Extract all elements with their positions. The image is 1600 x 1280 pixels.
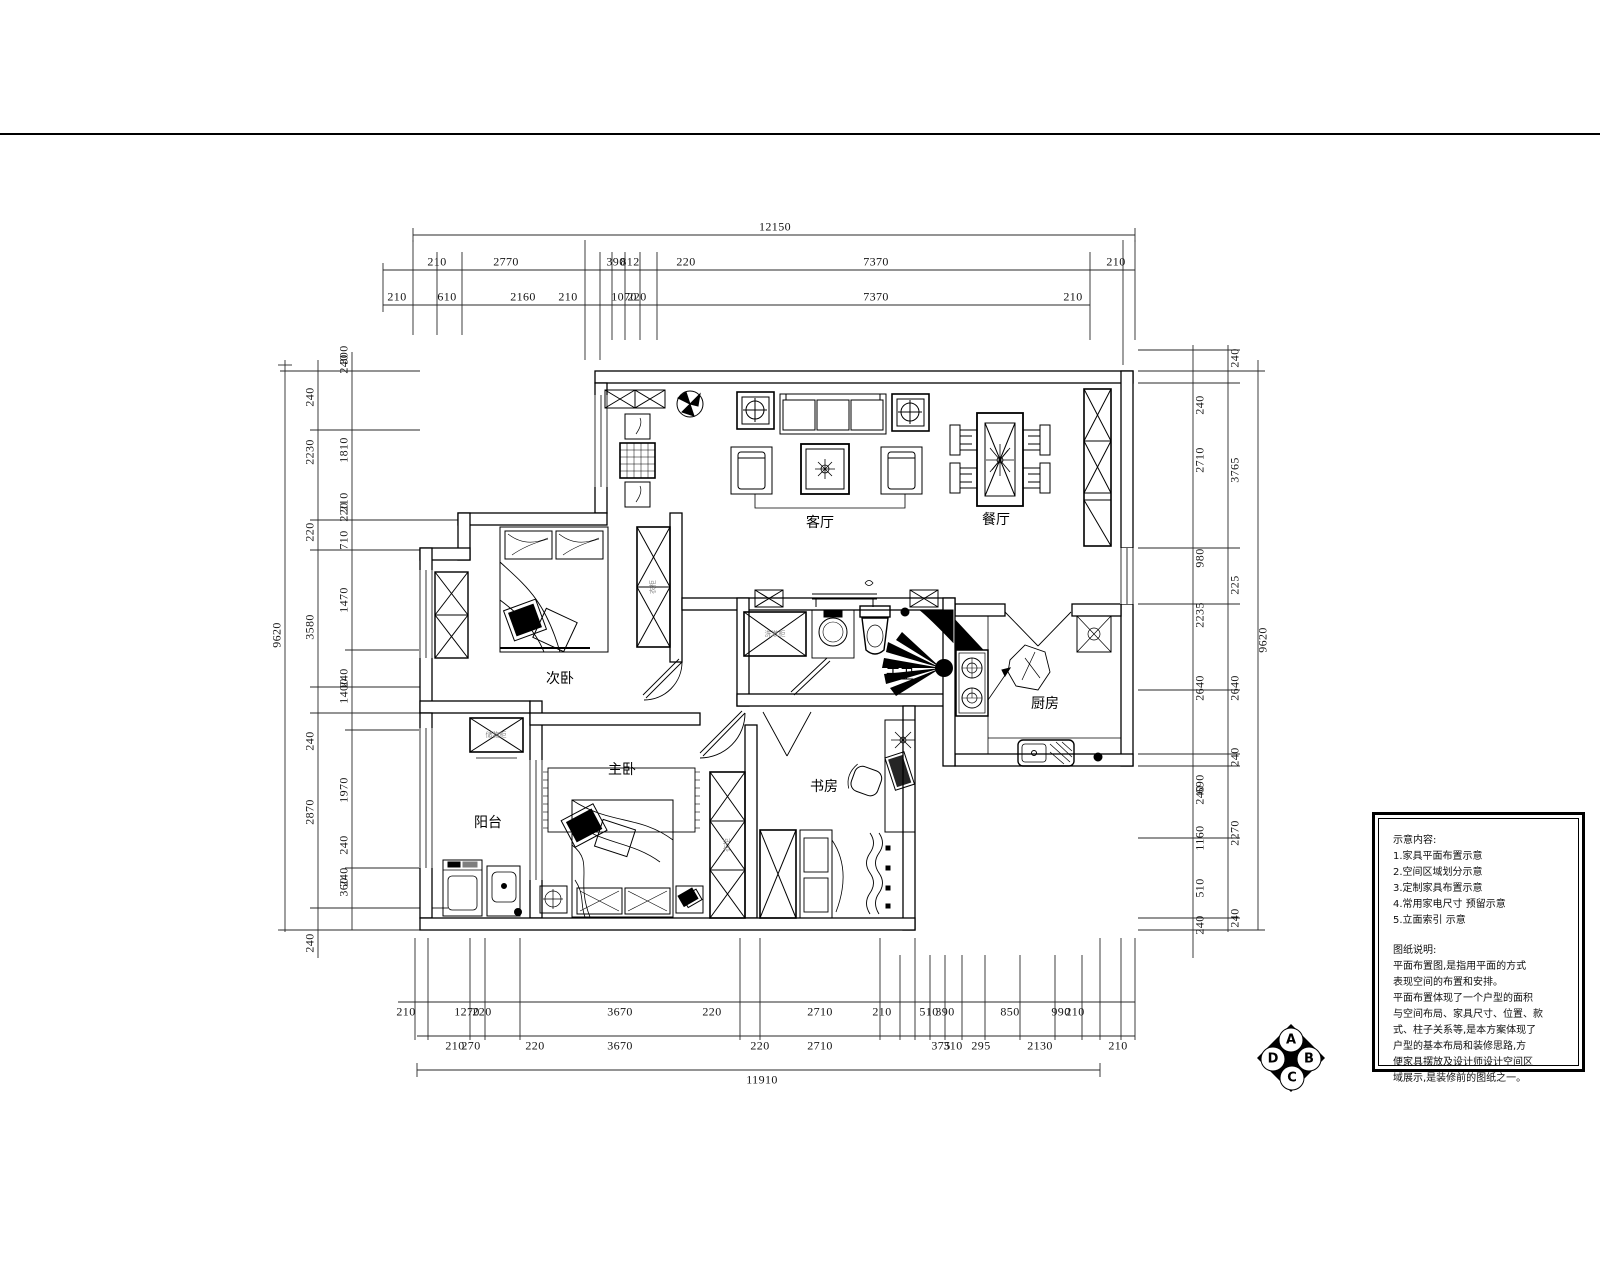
dim-label: 210: [558, 290, 577, 305]
room-label-bath: 干卫: [886, 664, 914, 684]
dim-label: 240: [1193, 785, 1208, 804]
dim-label: 210: [1108, 1039, 1127, 1054]
dim-label: 3670: [607, 1039, 633, 1054]
dim-label: 2770: [493, 255, 519, 270]
elevation-letter-b: B: [1304, 1052, 1314, 1067]
dim-label: 210: [387, 290, 406, 305]
dim-label: 1160: [1193, 825, 1208, 850]
kitchen-furniture: [955, 616, 1121, 766]
notes-item: 5.立面索引 示意: [1393, 913, 1568, 929]
dim-label: 980: [1193, 548, 1208, 567]
dim-label: 850: [1000, 1005, 1019, 1020]
dim-label: 2640: [1193, 675, 1208, 701]
dim-label: 220: [676, 255, 695, 270]
doors: [643, 612, 1071, 758]
dim-label: 210: [1063, 290, 1082, 305]
dim-label: 7370: [863, 255, 889, 270]
dim-label: 210: [427, 255, 446, 270]
notes-item: 3.定制家具布置示意: [1393, 881, 1568, 897]
dim-label: 270: [461, 1039, 480, 1054]
dim-label: 240: [303, 933, 318, 952]
dim-label: 610: [437, 290, 456, 305]
dim-label: 240: [1228, 348, 1243, 367]
dim-label: 1470: [337, 587, 352, 613]
room-label-bed2: 次卧: [546, 668, 574, 688]
dim-label: 390: [935, 1005, 954, 1020]
notes-line: 便家具摆放及设计师设计空间区: [1393, 1055, 1568, 1071]
dim-left-total: 9620: [270, 622, 285, 648]
notes-line: 平面布置图,是指用平面的方式: [1393, 959, 1568, 975]
dim-bottom-total: 11910: [746, 1073, 778, 1088]
notes-item: 2.空间区域划分示意: [1393, 865, 1568, 881]
dim-label: 1400: [337, 678, 352, 704]
furniture-label-vanity: 洗漱柜: [765, 629, 786, 639]
notes-line: 式、柱子关系等,是本方案体现了: [1393, 1023, 1568, 1039]
dim-label: 220: [303, 522, 318, 541]
dim-label: 220: [627, 290, 646, 305]
dim-label: 2270: [1228, 820, 1243, 846]
dim-label: 240: [1228, 908, 1243, 927]
furniture-label-wardrobe2: 衣柜: [722, 838, 732, 852]
dim-label: 240: [1228, 747, 1243, 766]
dim-label: 220: [472, 1005, 491, 1020]
master-bedroom-furniture: [540, 768, 745, 918]
room-label-dining: 餐厅: [982, 509, 1010, 529]
notes-line: 域展示,是装修前的图纸之一。: [1393, 1071, 1568, 1087]
notes-head2: 图纸说明:: [1393, 943, 1568, 959]
dim-label: 240: [337, 354, 352, 373]
dim-label: 2130: [1027, 1039, 1053, 1054]
elevation-letter-d: D: [1268, 1052, 1279, 1067]
dim-label: 7370: [863, 290, 889, 305]
dim-top-total: 12150: [759, 220, 791, 235]
dim-label: 220: [750, 1039, 769, 1054]
notes-line: 与空间布局、家具尺寸、位置、款: [1393, 1007, 1568, 1023]
dim-label: 2870: [303, 799, 318, 825]
room-label-master: 主卧: [608, 759, 636, 779]
notes-line: 户型的基本布局和装修思路,方: [1393, 1039, 1568, 1055]
dim-label: 225: [1228, 575, 1243, 594]
notes-line: 平面布置体现了一个户型的面积: [1393, 991, 1568, 1007]
dim-label: 2235: [1193, 602, 1208, 628]
notes-head: 示意内容:: [1393, 833, 1568, 849]
furniture-label-cabinet: 储物柜: [486, 730, 507, 740]
dim-label: 310: [943, 1039, 962, 1054]
dim-label: 1810: [337, 437, 352, 463]
dim-label: 220: [702, 1005, 721, 1020]
room-label-kitchen: 厨房: [1031, 693, 1059, 713]
notes-text: 示意内容: 1.家具平面布置示意 2.空间区域划分示意 3.定制家具布置示意 4…: [1378, 818, 1579, 1066]
dim-label: 240: [303, 387, 318, 406]
dim-label: 2230: [303, 439, 318, 465]
dim-label: 2710: [1193, 447, 1208, 473]
dim-label: 3670: [607, 1005, 633, 1020]
dim-label: 210: [1106, 255, 1125, 270]
dim-label: 2710: [807, 1039, 833, 1054]
elevation-letter-a: A: [1286, 1033, 1296, 1048]
dim-label: 295: [971, 1039, 990, 1054]
dim-right-total: 9620: [1256, 627, 1271, 653]
dim-label: 240: [1193, 915, 1208, 934]
dim-label: 210: [396, 1005, 415, 1020]
dim-label: 360: [337, 877, 352, 896]
notes-line: 表现空间的布置和安排。: [1393, 975, 1568, 991]
floor-plan-sheet: 12150 210 2770 390 812 220 7370 210 210 …: [0, 0, 1600, 1280]
dim-label: 510: [1193, 878, 1208, 897]
living-room-furniture: [605, 390, 929, 508]
notes-item: 4.常用家电尺寸 预留示意: [1393, 897, 1568, 913]
dim-label: 240: [1193, 395, 1208, 414]
dim-label: 812: [620, 255, 639, 270]
dim-label: 240: [303, 731, 318, 750]
dim-label: 210: [872, 1005, 891, 1020]
room-label-balcony: 阳台: [474, 812, 502, 832]
dim-label: 220: [525, 1039, 544, 1054]
dining-furniture: [950, 389, 1111, 546]
dim-label: 2160: [510, 290, 536, 305]
dim-label: 2710: [807, 1005, 833, 1020]
notes-item: 1.家具平面布置示意: [1393, 849, 1568, 865]
dim-label: 3765: [1228, 457, 1243, 483]
bathroom-furniture: [744, 606, 953, 696]
dim-label: 220: [337, 502, 352, 521]
furniture-label-wardrobe: 衣柜: [648, 580, 658, 594]
dim-label: 710: [337, 530, 352, 549]
dim-label: 1970: [337, 777, 352, 803]
dim-label: 2640: [1228, 675, 1243, 701]
walls: [420, 371, 1133, 930]
dim-label: 3580: [303, 614, 318, 640]
dim-label: 240: [337, 835, 352, 854]
dim-label: 210: [1065, 1005, 1084, 1020]
room-label-study: 书房: [810, 776, 838, 796]
notes-panel: 示意内容: 1.家具平面布置示意 2.空间区域划分示意 3.定制家具布置示意 4…: [1372, 812, 1585, 1072]
room-label-living: 客厅: [806, 512, 834, 532]
plan-linework: [0, 0, 1600, 1280]
elevation-letter-c: C: [1287, 1071, 1297, 1086]
